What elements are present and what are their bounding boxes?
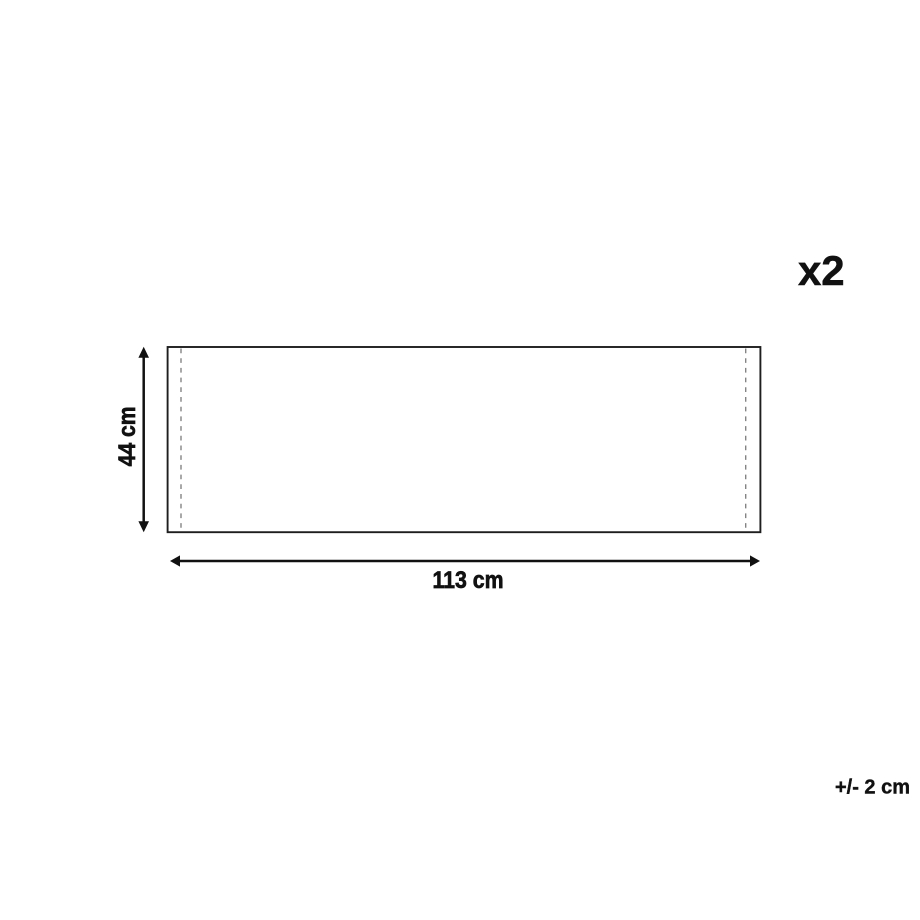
svg-text:+/- 2 cm: +/- 2 cm <box>835 777 910 799</box>
svg-text:44 cm: 44 cm <box>114 406 141 466</box>
svg-text:113 cm: 113 cm <box>433 567 504 594</box>
svg-text:x2: x2 <box>798 247 845 294</box>
